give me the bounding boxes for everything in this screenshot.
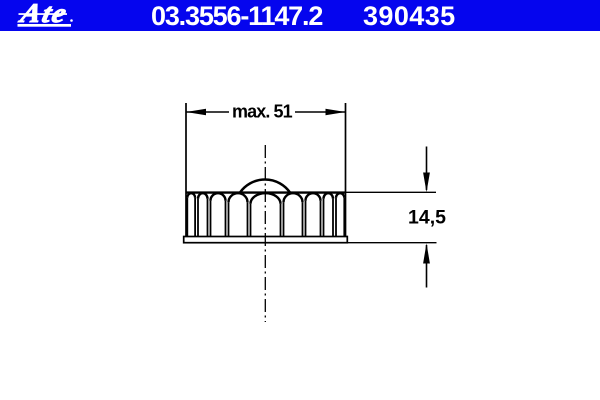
- svg-text:max. 51: max. 51: [232, 101, 293, 121]
- svg-text:14,5: 14,5: [408, 207, 446, 229]
